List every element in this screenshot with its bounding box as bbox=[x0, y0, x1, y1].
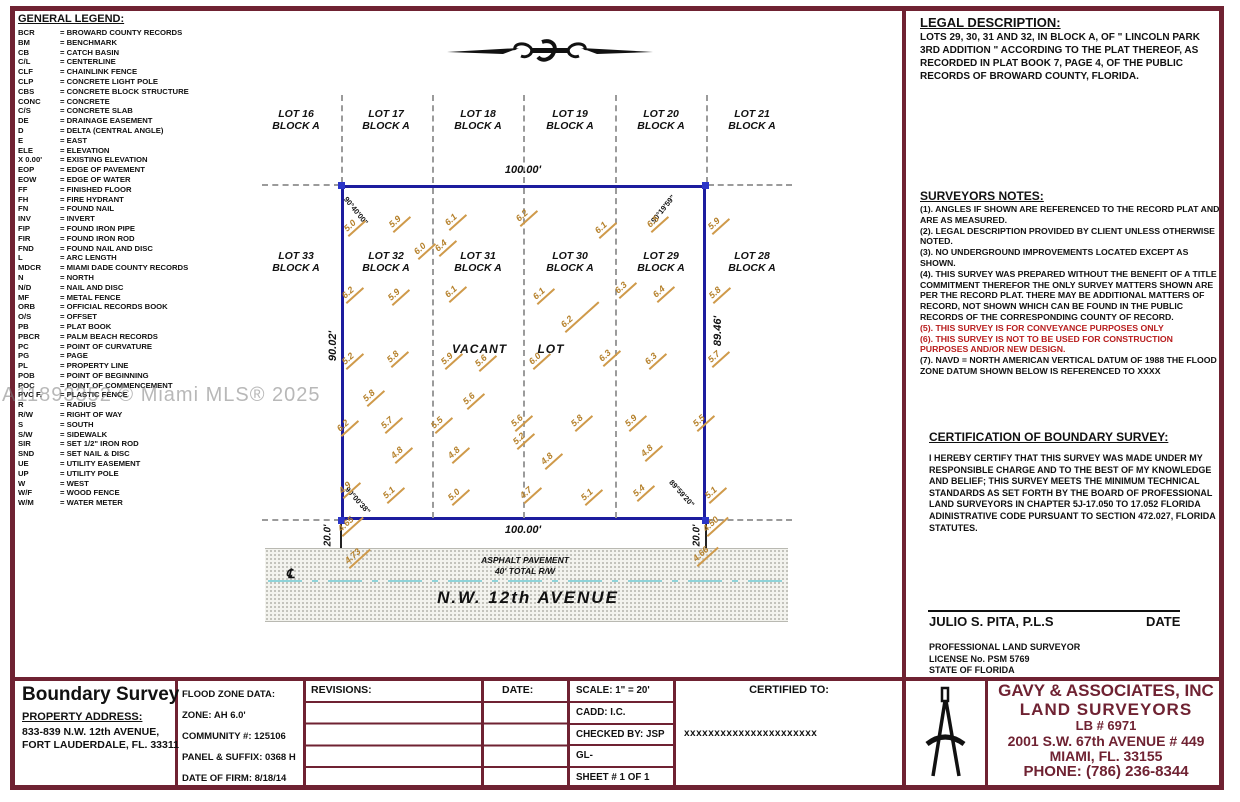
revisions-table bbox=[303, 681, 567, 790]
legend-item: EOP= EDGE OF PAVEMENT bbox=[18, 165, 233, 175]
boundary-survey-sheet: A11893352 © Miami MLS® 2025 GENERAL LEGE… bbox=[0, 0, 1240, 802]
legend-item: CBS= CONCRETE BLOCK STRUCTURE bbox=[18, 87, 233, 97]
legend-item: X 0.00'= EXISTING ELEVATION bbox=[18, 155, 233, 165]
lot-number: LOT 29 bbox=[616, 250, 706, 262]
certification-body: I HEREBY CERTIFY THAT THIS SURVEY WAS MA… bbox=[929, 453, 1221, 534]
centerline-symbol: ℄ bbox=[286, 566, 294, 582]
lot-label: LOT 18BLOCK A bbox=[433, 108, 523, 132]
lot-number: LOT 19 bbox=[525, 108, 615, 120]
legend-item: PL= PROPERTY LINE bbox=[18, 361, 233, 371]
dimension-west: 90.02' bbox=[327, 316, 339, 376]
lot-block: BLOCK A bbox=[251, 262, 341, 274]
legend-def: = UTILITY EASEMENT bbox=[60, 459, 140, 468]
legend-def: = OFFSET bbox=[60, 312, 97, 321]
certified-to-label: CERTIFIED TO: bbox=[676, 684, 902, 696]
legend-abbr: DE bbox=[18, 116, 60, 126]
legend-item: W= WEST bbox=[18, 479, 233, 489]
right-column-divider bbox=[902, 11, 906, 790]
legend-abbr: PG bbox=[18, 351, 60, 361]
surveyor-note: (4). THIS SURVEY WAS PREPARED WITHOUT TH… bbox=[920, 269, 1222, 323]
credential-line: STATE OF FLORIDA bbox=[929, 665, 1080, 677]
lot-number: LOT 20 bbox=[616, 108, 706, 120]
surveyor-note: (3). NO UNDERGROUND IMPROVEMENTS LOCATED… bbox=[920, 247, 1222, 269]
lot-block: BLOCK A bbox=[525, 262, 615, 274]
legend-def: = WOOD FENCE bbox=[60, 488, 120, 497]
lot-label: LOT 19BLOCK A bbox=[525, 108, 615, 132]
lot-block: BLOCK A bbox=[341, 262, 431, 274]
legend-def: = CONCRETE BLOCK STRUCTURE bbox=[60, 87, 189, 96]
legend-def: = BENCHMARK bbox=[60, 38, 117, 47]
legend-item: PBCR= PALM BEACH RECORDS bbox=[18, 332, 233, 342]
legend-item: SND= SET NAIL & DISC bbox=[18, 449, 233, 459]
property-address-line1: 833-839 N.W. 12th AVENUE, bbox=[22, 726, 159, 738]
legend-item: MF= METAL FENCE bbox=[18, 293, 233, 303]
sheet-title: Boundary Survey bbox=[22, 684, 179, 706]
legend-def: = DELTA (CENTRAL ANGLE) bbox=[60, 126, 163, 135]
legend-def: = NAIL AND DISC bbox=[60, 283, 123, 292]
certification-title: CERTIFICATION OF BOUNDARY SURVEY: bbox=[929, 430, 1168, 444]
lot-block: BLOCK A bbox=[251, 120, 341, 132]
legend-item: CONC= CONCRETE bbox=[18, 97, 233, 107]
street-name: N.W. 12th AVENUE bbox=[398, 588, 658, 608]
legend-def: = CHAINLINK FENCE bbox=[60, 67, 137, 76]
flood-row: FLOOD ZONE DATA: bbox=[182, 684, 302, 705]
revisions-label: REVISIONS: bbox=[311, 684, 372, 696]
legend-item: UE= UTILITY EASEMENT bbox=[18, 459, 233, 469]
legend-def: = METAL FENCE bbox=[60, 293, 121, 302]
legend-def: = SET NAIL & DISC bbox=[60, 449, 130, 458]
lot-label: LOT 33BLOCK A bbox=[251, 250, 341, 274]
legend-abbr: INV bbox=[18, 214, 60, 224]
legend-def: = MIAMI DADE COUNTY RECORDS bbox=[60, 263, 188, 272]
pavement-label: ASPHALT PAVEMENT bbox=[420, 555, 630, 565]
lot-number: LOT 31 bbox=[433, 250, 523, 262]
property-address-line2: FORT LAUDERDALE, FL. 33311 bbox=[22, 739, 179, 751]
lot-number: LOT 33 bbox=[251, 250, 341, 262]
company-block: GAVY & ASSOCIATES, INCLAND SURVEYORSLB #… bbox=[988, 682, 1224, 781]
lot-number: LOT 18 bbox=[433, 108, 523, 120]
mls-watermark: A11893352 © Miami MLS® 2025 bbox=[2, 384, 320, 407]
surveyor-note: (5). THIS SURVEY IS FOR CONVEYANCE PURPO… bbox=[920, 323, 1222, 334]
lot-label: LOT 16BLOCK A bbox=[251, 108, 341, 132]
boundary-extension-dash bbox=[708, 184, 792, 186]
legend-abbr: POB bbox=[18, 371, 60, 381]
legend-item: N= NORTH bbox=[18, 273, 233, 283]
legend-item: C/L= CENTERLINE bbox=[18, 57, 233, 67]
legend-abbr: MDCR bbox=[18, 263, 60, 273]
legend-abbr: UE bbox=[18, 459, 60, 469]
legend-abbr: FF bbox=[18, 185, 60, 195]
legend-item: O/S= OFFSET bbox=[18, 312, 233, 322]
legal-description-body: LOTS 29, 30, 31 AND 32, IN BLOCK A, OF "… bbox=[920, 31, 1212, 83]
legend-abbr: L bbox=[18, 253, 60, 263]
legend-abbr: FND bbox=[18, 244, 60, 254]
legend-def: = OFFICIAL RECORDS BOOK bbox=[60, 302, 168, 311]
legend-def: = WEST bbox=[60, 479, 89, 488]
titleblock-divider bbox=[673, 681, 676, 790]
lot-label: LOT 17BLOCK A bbox=[341, 108, 431, 132]
boundary-extension-dash bbox=[262, 184, 340, 186]
company-line: 2001 S.W. 67th AVENUE # 449 bbox=[988, 734, 1224, 749]
legend-item: PC= POINT OF CURVATURE bbox=[18, 342, 233, 352]
legend-abbr: FIR bbox=[18, 234, 60, 244]
surveyor-note: (2). LEGAL DESCRIPTION PROVIDED BY CLIEN… bbox=[920, 226, 1222, 248]
legend-item: INV= INVERT bbox=[18, 214, 233, 224]
legend-abbr: CB bbox=[18, 48, 60, 58]
lot-block: BLOCK A bbox=[616, 262, 706, 274]
legend-item: EOW= EDGE OF WATER bbox=[18, 175, 233, 185]
flood-row: PANEL & SUFFIX: 0368 H bbox=[182, 747, 302, 768]
legend-abbr: N/D bbox=[18, 283, 60, 293]
legend-abbr: W bbox=[18, 479, 60, 489]
legend-def: = PAGE bbox=[60, 351, 88, 360]
lot-block: BLOCK A bbox=[707, 262, 797, 274]
legend-abbr: BCR bbox=[18, 28, 60, 38]
lot-label: LOT 29BLOCK A bbox=[616, 250, 706, 274]
surveyor-note: (6). THIS SURVEY IS NOT TO BE USED FOR C… bbox=[920, 334, 1222, 356]
legend-def: = NORTH bbox=[60, 273, 94, 282]
scale-row: CHECKED BY: JSP bbox=[570, 725, 673, 747]
lot-number: LOT 30 bbox=[525, 250, 615, 262]
legend-def: = ARC LENGTH bbox=[60, 253, 117, 262]
legend-def: = FOUND NAIL AND DISC bbox=[60, 244, 153, 253]
legend-abbr: S bbox=[18, 420, 60, 430]
legend-item: PG= PAGE bbox=[18, 351, 233, 361]
surveyor-note: (7). NAVD = NORTH AMERICAN VERTICAL DATU… bbox=[920, 355, 1222, 377]
right-of-way-label: 40' TOTAL R/W bbox=[420, 566, 630, 576]
legend-item: PB= PLAT BOOK bbox=[18, 322, 233, 332]
scale-row: SHEET # 1 OF 1 bbox=[570, 768, 673, 790]
legend-def: = EAST bbox=[60, 136, 87, 145]
legend-def: = RIGHT OF WAY bbox=[60, 410, 122, 419]
legend-def: = CATCH BASIN bbox=[60, 48, 119, 57]
scale-row: SCALE: 1" = 20' bbox=[570, 681, 673, 703]
scale-row: CADD: I.C. bbox=[570, 703, 673, 725]
legend-def: = DRAINAGE EASEMENT bbox=[60, 116, 152, 125]
legend-item: W/M= WATER METER bbox=[18, 498, 233, 508]
legend-title: GENERAL LEGEND: bbox=[18, 13, 124, 25]
scale-info-table: SCALE: 1" = 20'CADD: I.C.CHECKED BY: JSP… bbox=[570, 681, 673, 790]
legend-abbr: UP bbox=[18, 469, 60, 479]
legend-abbr: C/S bbox=[18, 106, 60, 116]
lot-block: BLOCK A bbox=[616, 120, 706, 132]
lot-block: BLOCK A bbox=[433, 120, 523, 132]
legend-abbr: S/W bbox=[18, 430, 60, 440]
legend-def: = FOUND NAIL bbox=[60, 204, 114, 213]
legend-abbr: R/W bbox=[18, 410, 60, 420]
legend-def: = FINISHED FLOOR bbox=[60, 185, 132, 194]
legend-def: = PLAT BOOK bbox=[60, 322, 111, 331]
ornament-divider bbox=[445, 38, 655, 69]
legend-item: FH= FIRE HYDRANT bbox=[18, 195, 233, 205]
legend-abbr: FIP bbox=[18, 224, 60, 234]
lot-block: BLOCK A bbox=[525, 120, 615, 132]
legal-description-title: LEGAL DESCRIPTION: bbox=[920, 15, 1061, 30]
dimension-south: 100.00' bbox=[478, 524, 568, 536]
flood-row: DATE OF FIRM: 8/18/14 bbox=[182, 768, 302, 789]
legend-abbr: SIR bbox=[18, 439, 60, 449]
street-centerline bbox=[268, 580, 785, 582]
legend-item: UP= UTILITY POLE bbox=[18, 469, 233, 479]
legend-item: FND= FOUND NAIL AND DISC bbox=[18, 244, 233, 254]
legend-def: = ELEVATION bbox=[60, 146, 109, 155]
legend-abbr: W/M bbox=[18, 498, 60, 508]
revision-date-label: DATE: bbox=[502, 684, 533, 696]
credential-line: PROFESSIONAL LAND SURVEYOR bbox=[929, 642, 1080, 654]
lot-label: LOT 31BLOCK A bbox=[433, 250, 523, 274]
lot-block: BLOCK A bbox=[707, 120, 797, 132]
lot-label: LOT 21BLOCK A bbox=[707, 108, 797, 132]
legend-def: = UTILITY POLE bbox=[60, 469, 119, 478]
legend-item: MDCR= MIAMI DADE COUNTY RECORDS bbox=[18, 263, 233, 273]
surveyor-credentials: PROFESSIONAL LAND SURVEYORLICENSE No. PS… bbox=[929, 642, 1080, 677]
drafting-compass-icon bbox=[923, 686, 967, 782]
lot-label: LOT 30BLOCK A bbox=[525, 250, 615, 274]
scale-row: GL- bbox=[570, 746, 673, 768]
property-address-label: PROPERTY ADDRESS: bbox=[22, 711, 142, 723]
legend-item: BM= BENCHMARK bbox=[18, 38, 233, 48]
legend-abbr: CONC bbox=[18, 97, 60, 107]
legend-abbr: CLP bbox=[18, 77, 60, 87]
corner-monument bbox=[702, 182, 709, 189]
legend-item: FIP= FOUND IRON PIPE bbox=[18, 224, 233, 234]
company-line: GAVY & ASSOCIATES, INC bbox=[988, 682, 1224, 701]
legend-item: CLF= CHAINLINK FENCE bbox=[18, 67, 233, 77]
legend-def: = FOUND IRON PIPE bbox=[60, 224, 135, 233]
lot-number: LOT 16 bbox=[251, 108, 341, 120]
legend-item: SIR= SET 1/2" IRON ROD bbox=[18, 439, 233, 449]
legend-item: CB= CATCH BASIN bbox=[18, 48, 233, 58]
legend-abbr: CLF bbox=[18, 67, 60, 77]
legend-def: = PROPERTY LINE bbox=[60, 361, 128, 370]
flood-row: COMMUNITY #: 125106 bbox=[182, 726, 302, 747]
legend-item: E= EAST bbox=[18, 136, 233, 146]
legend-abbr: E bbox=[18, 136, 60, 146]
legend-item: ORB= OFFICIAL RECORDS BOOK bbox=[18, 302, 233, 312]
legend-abbr: C/L bbox=[18, 57, 60, 67]
legend-item: D= DELTA (CENTRAL ANGLE) bbox=[18, 126, 233, 136]
legend-abbr: ELE bbox=[18, 146, 60, 156]
company-line: LB # 6971 bbox=[988, 719, 1224, 733]
legend-abbr: MF bbox=[18, 293, 60, 303]
legend-def: = PALM BEACH RECORDS bbox=[60, 332, 158, 341]
signature-line bbox=[928, 610, 1180, 612]
legend-item: FN= FOUND NAIL bbox=[18, 204, 233, 214]
certified-to-value: xxxxxxxxxxxxxxxxxxxxxx bbox=[684, 728, 817, 739]
legend-abbr: ORB bbox=[18, 302, 60, 312]
legend-abbr: PB bbox=[18, 322, 60, 332]
interior-lot-divider bbox=[432, 188, 434, 518]
lot-label: LOT 20BLOCK A bbox=[616, 108, 706, 132]
legend-def: = EDGE OF PAVEMENT bbox=[60, 165, 145, 174]
legend-item: BCR= BROWARD COUNTY RECORDS bbox=[18, 28, 233, 38]
legend-def: = SIDEWALK bbox=[60, 430, 107, 439]
legend-abbr: N bbox=[18, 273, 60, 283]
legend-item: ELE= ELEVATION bbox=[18, 146, 233, 156]
legend-def: = CENTERLINE bbox=[60, 57, 116, 66]
legend-abbr: X 0.00' bbox=[18, 155, 60, 165]
legend-item: DE= DRAINAGE EASEMENT bbox=[18, 116, 233, 126]
legend-def: = CONCRETE SLAB bbox=[60, 106, 133, 115]
legend-def: = CONCRETE LIGHT POLE bbox=[60, 77, 158, 86]
legend-abbr: W/F bbox=[18, 488, 60, 498]
ornament-icon bbox=[445, 38, 655, 64]
surveyors-notes-body: (1). ANGLES IF SHOWN ARE REFERENCED TO T… bbox=[920, 204, 1222, 377]
legend-abbr: FH bbox=[18, 195, 60, 205]
legend-def: = EXISTING ELEVATION bbox=[60, 155, 148, 164]
lot-label: LOT 28BLOCK A bbox=[707, 250, 797, 274]
legend-def: = SET 1/2" IRON ROD bbox=[60, 439, 139, 448]
legend-item: CLP= CONCRETE LIGHT POLE bbox=[18, 77, 233, 87]
company-line: PHONE: (786) 236-8344 bbox=[988, 764, 1224, 781]
flood-zone-data: FLOOD ZONE DATA:ZONE: AH 6.0'COMMUNITY #… bbox=[182, 684, 302, 789]
company-line: MIAMI, FL. 33155 bbox=[988, 749, 1224, 764]
legend-list: BCR= BROWARD COUNTY RECORDSBM= BENCHMARK… bbox=[18, 28, 233, 508]
company-line: LAND SURVEYORS bbox=[988, 701, 1224, 720]
legend-def: = POINT OF BEGINNING bbox=[60, 371, 149, 380]
legend-item: R/W= RIGHT OF WAY bbox=[18, 410, 233, 420]
legend-abbr: PC bbox=[18, 342, 60, 352]
surveyor-name: JULIO S. PITA, P.L.S bbox=[929, 614, 1054, 629]
legend-abbr: PL bbox=[18, 361, 60, 371]
legend-item: FIR= FOUND IRON ROD bbox=[18, 234, 233, 244]
legend-abbr: FN bbox=[18, 204, 60, 214]
legend-def: = CONCRETE bbox=[60, 97, 110, 106]
legend-def: = INVERT bbox=[60, 214, 95, 223]
legend-item: S/W= SIDEWALK bbox=[18, 430, 233, 440]
date-label: DATE bbox=[1146, 614, 1180, 629]
legend-item: S= SOUTH bbox=[18, 420, 233, 430]
legend-abbr: CBS bbox=[18, 87, 60, 97]
legend-def: = FIRE HYDRANT bbox=[60, 195, 124, 204]
legend-item: N/D= NAIL AND DISC bbox=[18, 283, 233, 293]
legend-def: = POINT OF CURVATURE bbox=[60, 342, 152, 351]
lot-number: LOT 17 bbox=[341, 108, 431, 120]
lot-block: BLOCK A bbox=[433, 262, 523, 274]
revisions-date-divider bbox=[481, 681, 483, 790]
credential-line: LICENSE No. PSM 5769 bbox=[929, 654, 1080, 666]
legend-item: POB= POINT OF BEGINNING bbox=[18, 371, 233, 381]
legend-item: W/F= WOOD FENCE bbox=[18, 488, 233, 498]
legend-abbr: PBCR bbox=[18, 332, 60, 342]
legend-def: = FOUND IRON ROD bbox=[60, 234, 135, 243]
legend-item: C/S= CONCRETE SLAB bbox=[18, 106, 233, 116]
legend-abbr: BM bbox=[18, 38, 60, 48]
legend-def: = BROWARD COUNTY RECORDS bbox=[60, 28, 182, 37]
flood-row: ZONE: AH 6.0' bbox=[182, 705, 302, 726]
lot-number: LOT 28 bbox=[707, 250, 797, 262]
lot-number: LOT 21 bbox=[707, 108, 797, 120]
corner-monument bbox=[338, 182, 345, 189]
legend-def: = EDGE OF WATER bbox=[60, 175, 131, 184]
legend-item: L= ARC LENGTH bbox=[18, 253, 233, 263]
legend-abbr: O/S bbox=[18, 312, 60, 322]
legend-abbr: SND bbox=[18, 449, 60, 459]
surveyor-note: (1). ANGLES IF SHOWN ARE REFERENCED TO T… bbox=[920, 204, 1222, 226]
legend-item: FF= FINISHED FLOOR bbox=[18, 185, 233, 195]
compass-panel bbox=[923, 686, 967, 787]
legend-abbr: EOP bbox=[18, 165, 60, 175]
legend-def: = SOUTH bbox=[60, 420, 94, 429]
legend-abbr: D bbox=[18, 126, 60, 136]
legend-abbr: EOW bbox=[18, 175, 60, 185]
surveyors-notes-title: SURVEYORS NOTES: bbox=[920, 189, 1044, 203]
lot-block: BLOCK A bbox=[341, 120, 431, 132]
legend-def: = WATER METER bbox=[60, 498, 123, 507]
dimension-north: 100.00' bbox=[478, 164, 568, 176]
